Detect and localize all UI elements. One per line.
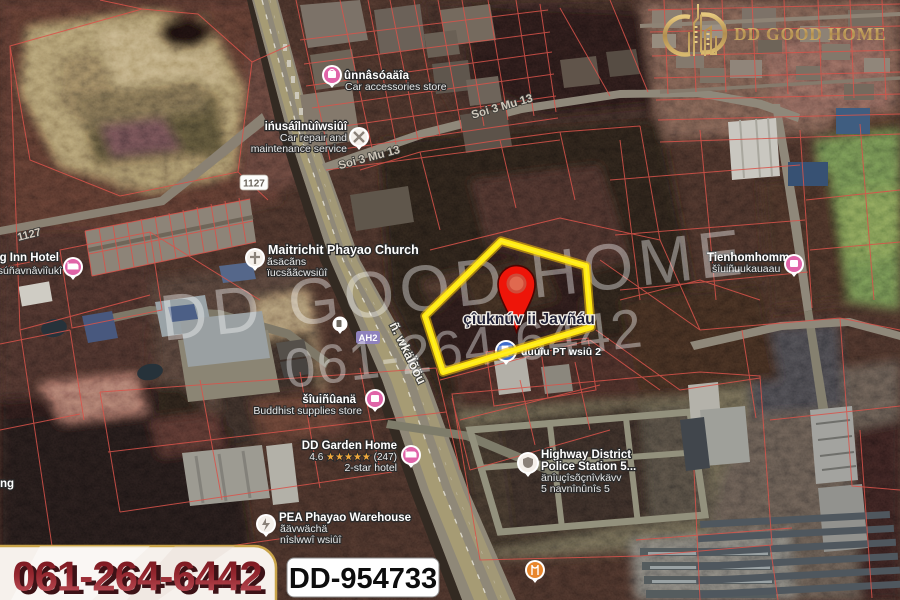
svg-text:ng Inn Hotel: ng Inn Hotel	[0, 252, 59, 264]
svg-text:maintenance service: maintenance service	[251, 143, 347, 155]
svg-text:ng: ng	[0, 478, 14, 490]
svg-text:5 navnînûnîs 5: 5 navnînûnîs 5	[541, 483, 610, 495]
svg-text:2-star hotel: 2-star hotel	[344, 462, 397, 474]
svg-text:DD-954733: DD-954733	[289, 563, 437, 595]
svg-text:Highway District: Highway District	[541, 449, 631, 461]
svg-text:DD Garden Home: DD Garden Home	[302, 440, 397, 452]
svg-text:nîslwwî wsiûî: nîslwwî wsiûî	[280, 534, 342, 546]
svg-text:DD GOOD HOME: DD GOOD HOME	[734, 24, 887, 44]
svg-text:Car accessories store: Car accessories store	[345, 81, 447, 93]
svg-text:061-264-6442: 061-264-6442	[12, 553, 262, 600]
svg-text:õsusúñavnâviîukî: õsusúñavnâviîukî	[0, 265, 63, 277]
svg-text:Buddhist supplies store: Buddhist supplies store	[253, 405, 362, 417]
svg-text:1127: 1127	[243, 179, 265, 190]
svg-text:çîuknúv ii Javñáu: çîuknúv ii Javñáu	[463, 311, 595, 328]
